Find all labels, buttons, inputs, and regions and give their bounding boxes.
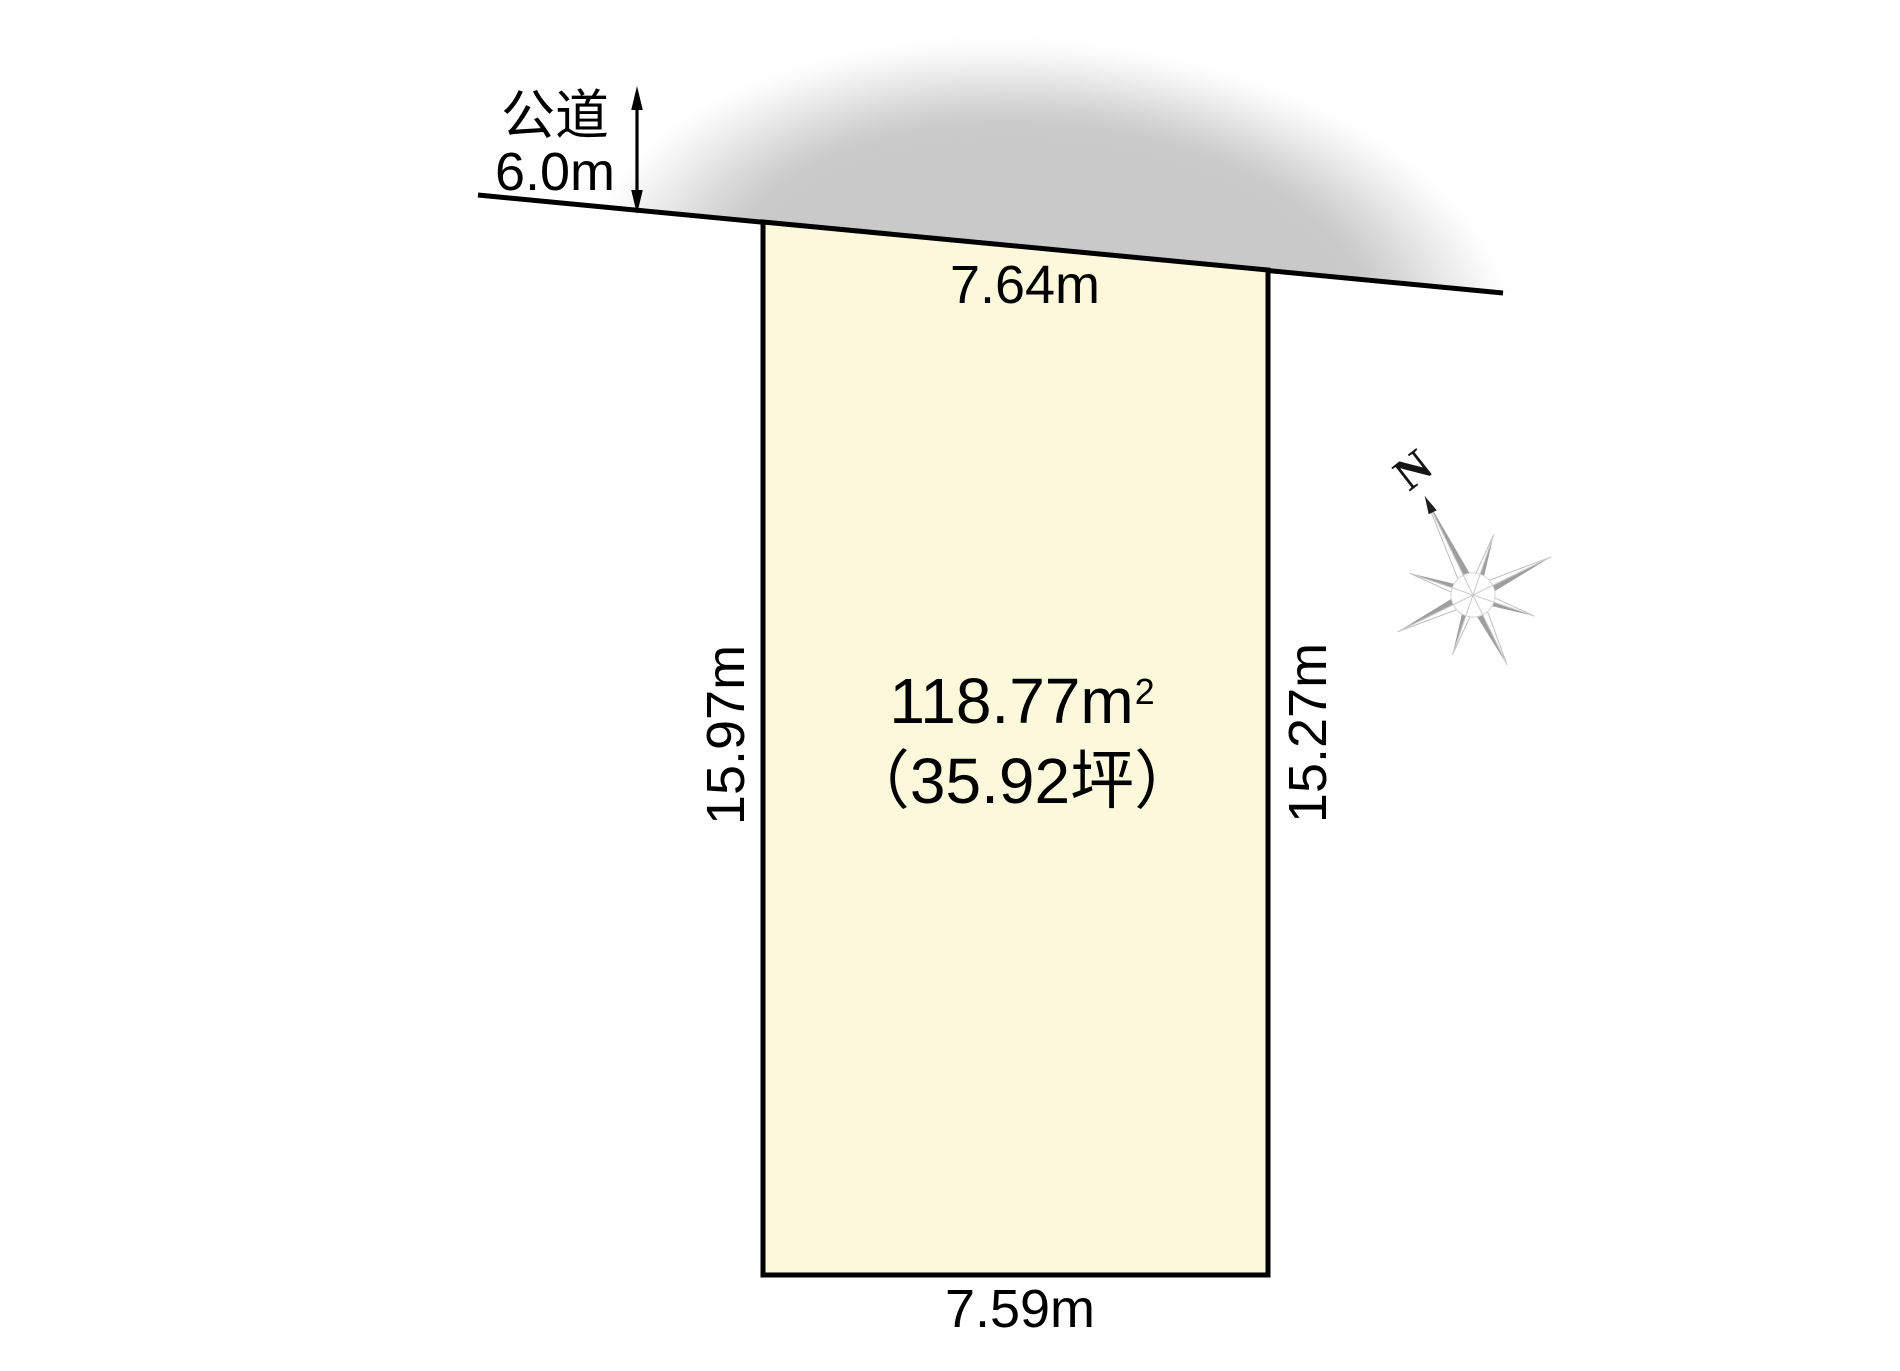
plot-area-label: 118.77m2 （35.92坪） — [672, 666, 1372, 816]
plot-area-tsubo: （35.92坪） — [672, 746, 1372, 816]
road-name-text: 公道 — [470, 88, 640, 144]
site-plan-canvas: 公道 6.0m 7.64m 15.97m 15.27m 7.59m 118.77… — [0, 0, 1900, 1371]
road-label: 公道 6.0m — [470, 88, 640, 200]
compass-rose-icon — [1349, 458, 1585, 702]
road-width-text: 6.0m — [470, 144, 640, 200]
dimension-bottom: 7.59m — [910, 1280, 1130, 1339]
plot-area-superscript: 2 — [1135, 672, 1155, 712]
plot-area-sqm: 118.77m2 — [672, 666, 1372, 746]
dimension-top: 7.64m — [915, 256, 1135, 315]
